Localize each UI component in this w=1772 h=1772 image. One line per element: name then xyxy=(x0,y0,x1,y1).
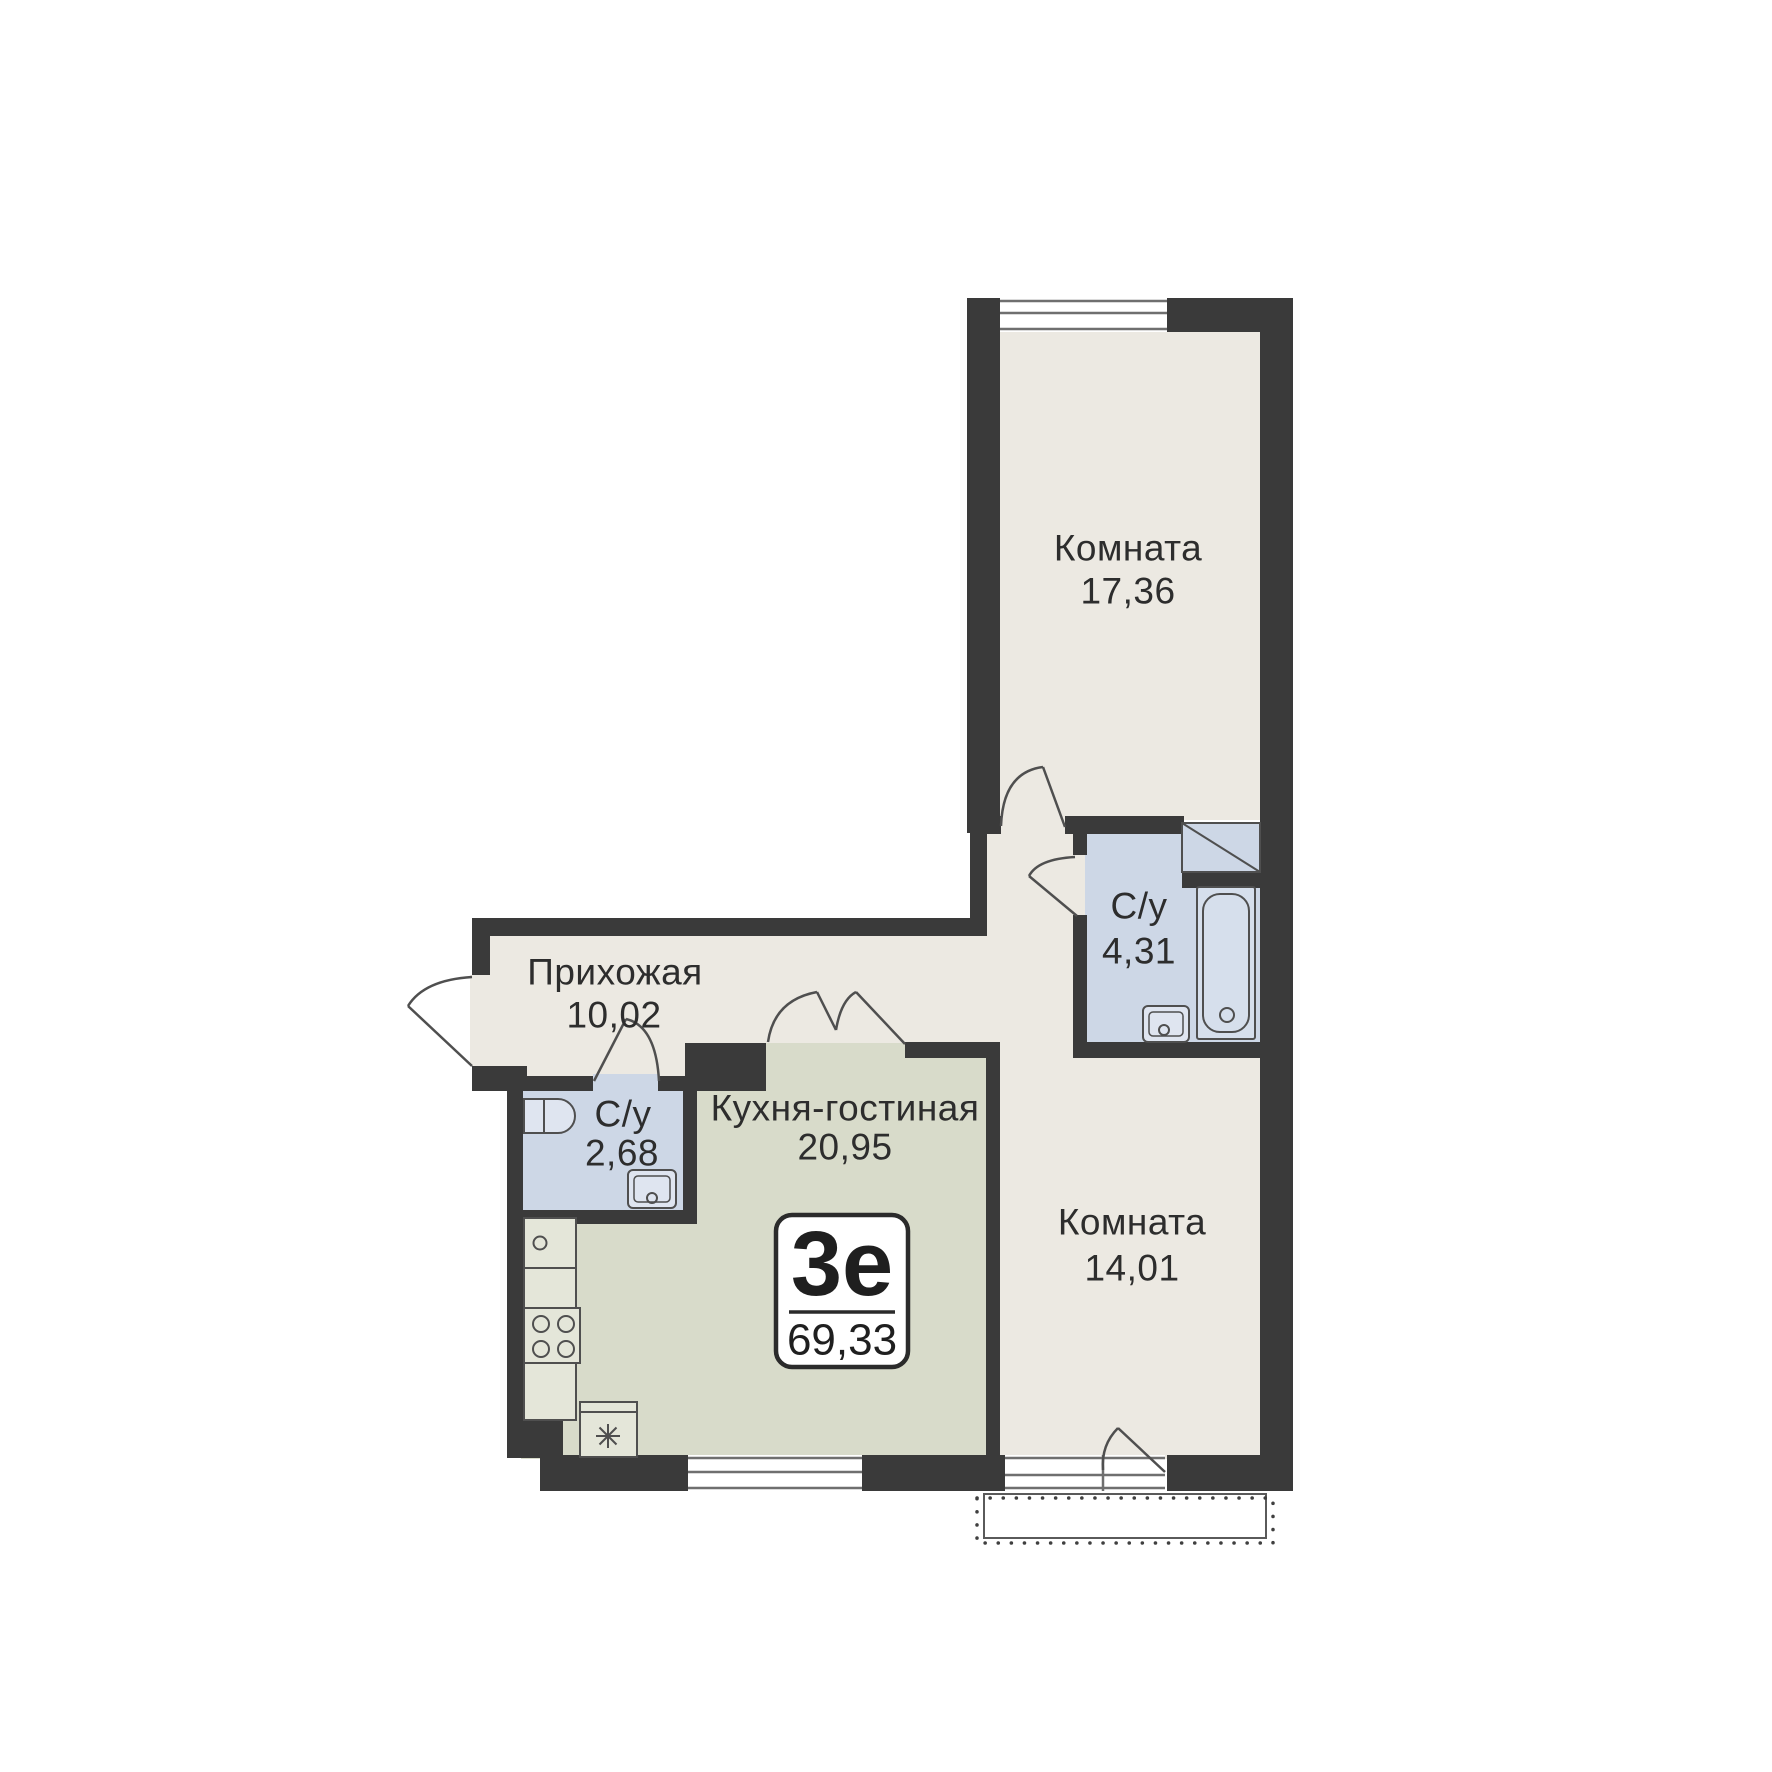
stove-burners-icon xyxy=(524,1308,580,1363)
room-label: Комната xyxy=(1058,1202,1206,1243)
floor-entrance-opening xyxy=(470,975,492,1066)
sink-icon xyxy=(1143,1006,1189,1042)
room-label: С/у xyxy=(595,1094,652,1135)
toilet-icon xyxy=(524,1099,575,1133)
wall-segment xyxy=(1073,915,1087,1058)
room-label: Комната xyxy=(1054,528,1202,569)
wall-segment xyxy=(540,1455,688,1491)
wall-segment xyxy=(1073,832,1087,855)
wall-segment xyxy=(1167,1455,1293,1491)
room-label: Кухня-гостиная xyxy=(711,1088,980,1129)
balcony-outline-icon xyxy=(977,1494,1273,1543)
room-label: С/у xyxy=(1111,886,1168,927)
kitchen-counter xyxy=(524,1268,576,1308)
wall-segment xyxy=(507,1076,523,1458)
door-arc-icon xyxy=(408,977,472,1066)
room-area: 10,02 xyxy=(566,995,661,1036)
washing-machine-icon xyxy=(580,1402,637,1457)
wall-segment xyxy=(472,918,490,975)
badge-layout-code: 3е xyxy=(791,1213,893,1315)
kitchen-counter xyxy=(524,1363,576,1420)
wall-segment xyxy=(1073,1042,1260,1058)
wall-segment xyxy=(967,298,1000,833)
wall-segment xyxy=(905,1042,1000,1058)
wall-segment xyxy=(521,1076,593,1091)
window-icon xyxy=(688,1455,862,1491)
floor-roomtop-door-opening xyxy=(1001,816,1065,834)
floor-kitchen-2 xyxy=(695,1088,766,1459)
wall-segment xyxy=(1182,872,1262,888)
sink-icon xyxy=(628,1170,676,1208)
room-area: 14,01 xyxy=(1084,1248,1179,1289)
wall-segment xyxy=(1065,816,1184,834)
room-area: 20,95 xyxy=(797,1127,892,1168)
ventilation-shaft-icon xyxy=(1182,823,1260,872)
badge-total-area: 69,33 xyxy=(787,1316,897,1365)
room-label: Прихожая xyxy=(527,952,702,993)
room-area: 17,36 xyxy=(1080,571,1175,612)
window-icon xyxy=(1000,298,1167,332)
floor-plan: Комната 17,36 С/у 4,31 Прихожая 10,02 С/… xyxy=(0,0,1772,1772)
apartment-badge: 3е 69,33 xyxy=(776,1213,908,1367)
wall-segment xyxy=(683,1088,697,1224)
room-area: 2,68 xyxy=(585,1133,659,1174)
wall-segment xyxy=(862,1455,1005,1491)
floor-plan-page: Комната 17,36 С/у 4,31 Прихожая 10,02 С/… xyxy=(0,0,1772,1772)
room-area: 4,31 xyxy=(1102,931,1176,972)
bathtub-icon xyxy=(1197,887,1255,1039)
wall-segment xyxy=(987,816,1001,834)
wall-segment xyxy=(685,1043,766,1091)
wall-segment xyxy=(1260,298,1293,1491)
wall-segment xyxy=(986,1042,1000,1458)
wall-segment xyxy=(507,1420,563,1458)
balcony-door-window-icon xyxy=(1005,1455,1165,1491)
wall-segment xyxy=(472,918,987,936)
kitchen-counter-sink-icon xyxy=(524,1218,576,1268)
floor-bath2-door-opening xyxy=(593,1074,658,1092)
